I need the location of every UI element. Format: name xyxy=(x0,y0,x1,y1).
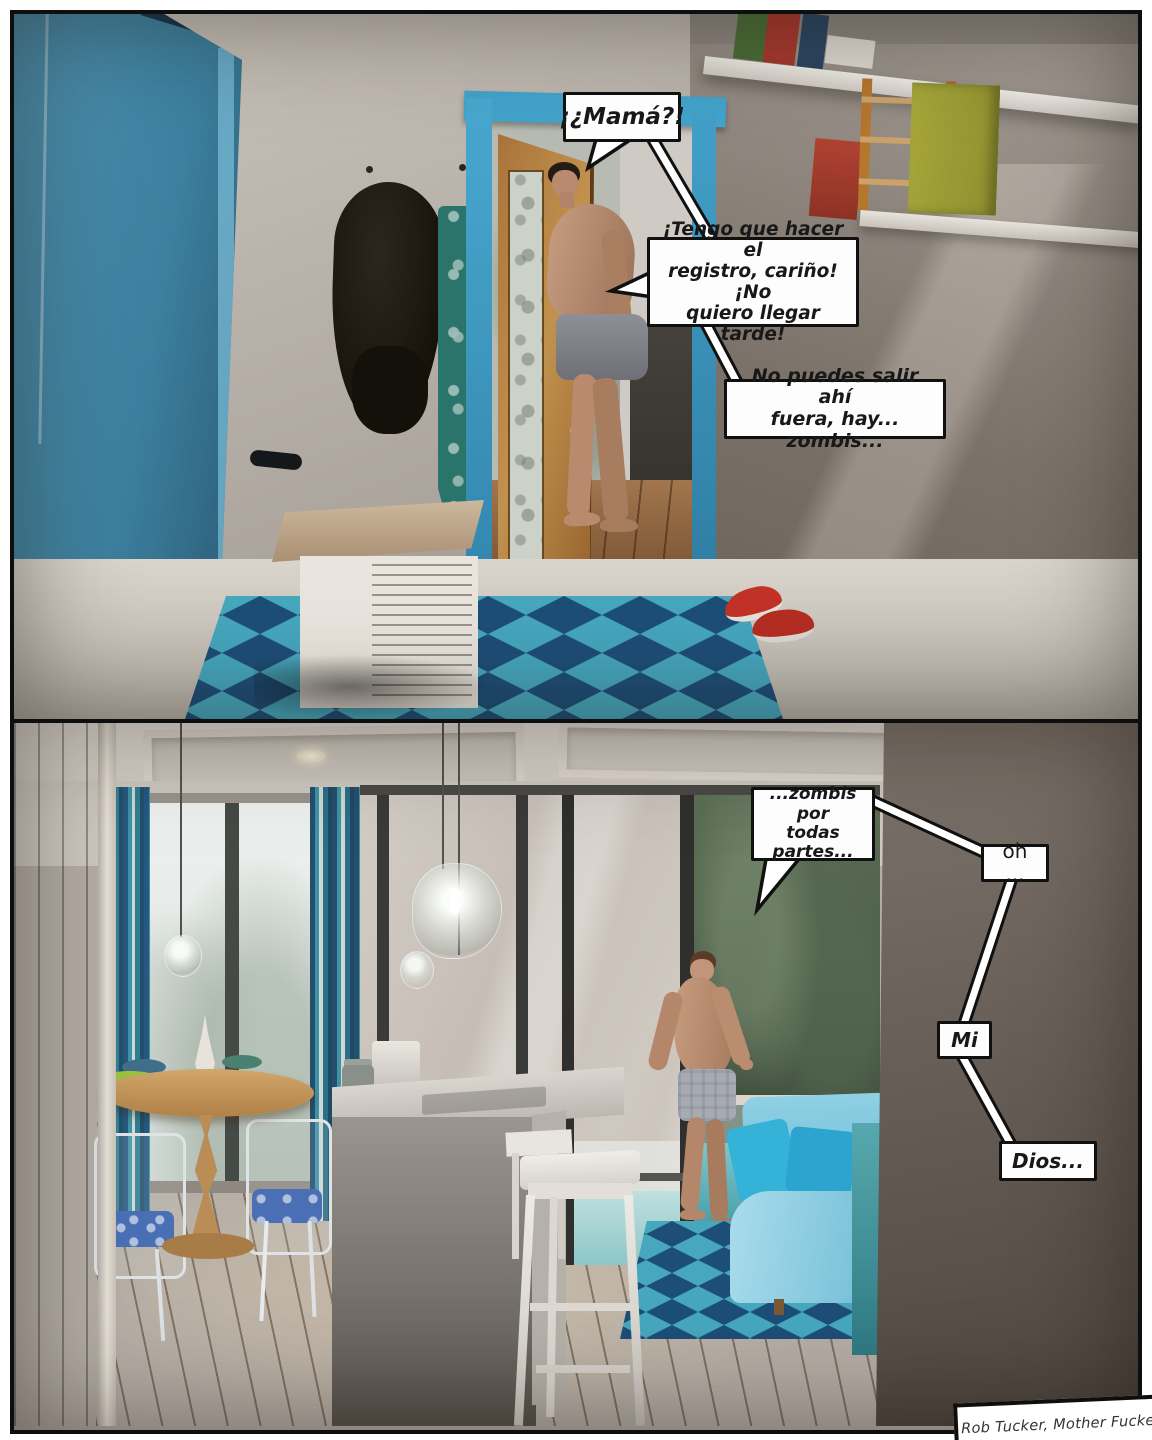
door-glass-strip xyxy=(508,170,544,598)
man1-neck xyxy=(560,192,574,208)
man2-hand xyxy=(740,1059,753,1070)
stool-rail xyxy=(536,1365,630,1373)
bench-shadow xyxy=(254,654,494,719)
pool-sliver xyxy=(852,1123,880,1355)
stool-apron xyxy=(528,1183,632,1199)
credit-caption-box: Rob Tucker, Mother Fucker xyxy=(953,1394,1152,1440)
book-stack-white xyxy=(824,35,875,69)
table-base xyxy=(162,1233,254,1259)
speech-bubble-mi: Mi xyxy=(937,1021,992,1059)
dining-area xyxy=(94,1023,326,1383)
blue-door-highlight xyxy=(38,14,49,444)
coat-bottom xyxy=(352,346,428,434)
man-1 xyxy=(542,162,674,592)
speech-bubble-registro: ¡Tengo que hacer el registro, cariño! ¡N… xyxy=(647,237,859,327)
sofa-leg xyxy=(774,1299,784,1315)
chair-right-cushion xyxy=(252,1189,322,1223)
man2-leg-left xyxy=(680,1116,706,1211)
door-edge-light xyxy=(98,723,116,1426)
recessed-light xyxy=(296,749,326,763)
sneakers xyxy=(724,580,828,648)
speech-bubble-oh: oh ... xyxy=(981,844,1049,882)
table-top xyxy=(102,1069,314,1117)
pendant-filament xyxy=(451,888,459,914)
sofa-pillow xyxy=(785,1126,858,1199)
pendant-globe xyxy=(164,935,202,977)
man1-foot xyxy=(564,511,601,527)
doorway-interior xyxy=(490,124,700,624)
table-bowl xyxy=(222,1055,262,1069)
man1-leg-back xyxy=(592,377,629,523)
wall-hook xyxy=(366,166,373,173)
man1-boxers xyxy=(556,314,648,380)
foreground-wall xyxy=(854,723,1138,1426)
doorframe-right-jamb xyxy=(692,112,716,624)
stool-rail xyxy=(530,1303,632,1311)
table-pedestal xyxy=(186,1115,226,1241)
man2-shorts xyxy=(678,1069,736,1121)
speech-bubble-mama: ¡¿Mamá?! xyxy=(563,92,681,142)
credit-caption-text: Rob Tucker, Mother Fucker xyxy=(961,1413,1152,1438)
man1-foot xyxy=(600,518,638,532)
panel-2 xyxy=(10,719,1142,1434)
island-sink xyxy=(422,1086,546,1115)
pendant-globe xyxy=(400,951,434,989)
island-toaster xyxy=(372,1041,420,1085)
stool-back-leg xyxy=(512,1153,519,1259)
table-vase xyxy=(192,1015,218,1077)
speech-bubble-todas-partes: ...zombis por todas partes... xyxy=(751,787,875,861)
comic-page: ¡¿Mamá?! ¡Tengo que hacer el registro, c… xyxy=(0,0,1152,1440)
man2-foot xyxy=(680,1209,706,1220)
foreground-door xyxy=(14,723,98,1426)
man2-leg-right xyxy=(705,1119,728,1220)
speech-bubble-zombis: No puedes salir ahí fuera, hay... zombis… xyxy=(724,379,946,439)
pendant-cord xyxy=(180,723,182,937)
olive-box xyxy=(908,83,1000,216)
chair-right xyxy=(246,1119,332,1255)
bar-stool-front xyxy=(520,1153,644,1426)
pendant-cord xyxy=(442,723,444,869)
speech-bubble-dios: Dios... xyxy=(999,1141,1097,1181)
man1-leg-front xyxy=(566,373,596,516)
